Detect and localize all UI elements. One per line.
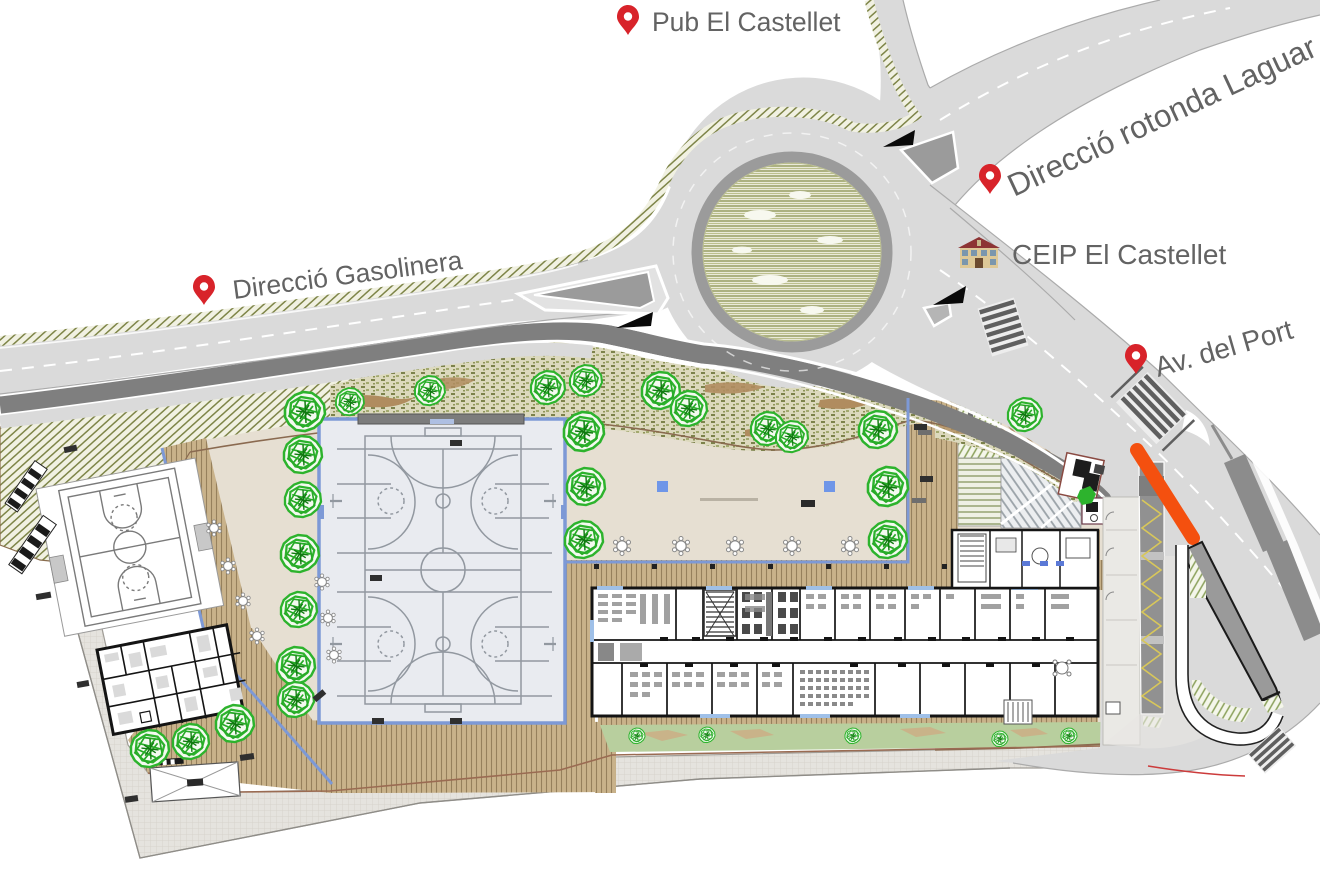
- svg-text:CEIP El Castellet: CEIP El Castellet: [1012, 239, 1226, 270]
- svg-text:Pub El Castellet: Pub El Castellet: [652, 7, 841, 37]
